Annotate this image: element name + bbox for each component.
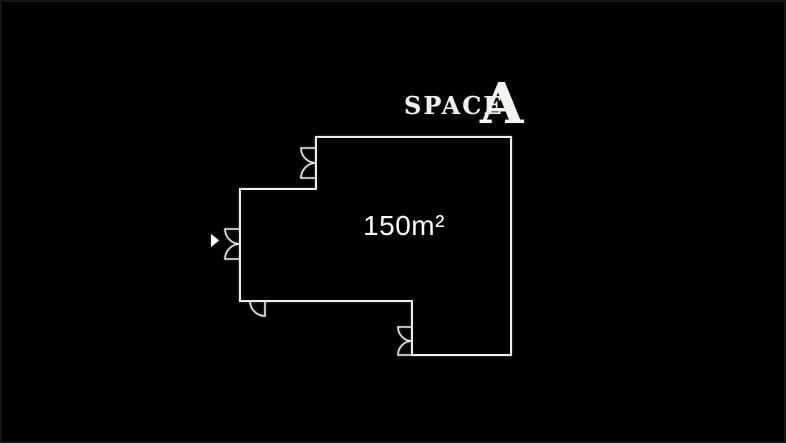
room-outline[interactable] (240, 137, 511, 355)
single-door-icon-bottom-left (250, 301, 265, 316)
canvas: SPACE A (0, 0, 786, 443)
double-door-icon-top (301, 148, 316, 178)
cursor-arrow-icon (211, 234, 219, 247)
double-door-icon-left (225, 229, 240, 259)
double-door-icon-bottom (398, 327, 412, 355)
area-label: 150m² (339, 212, 469, 240)
